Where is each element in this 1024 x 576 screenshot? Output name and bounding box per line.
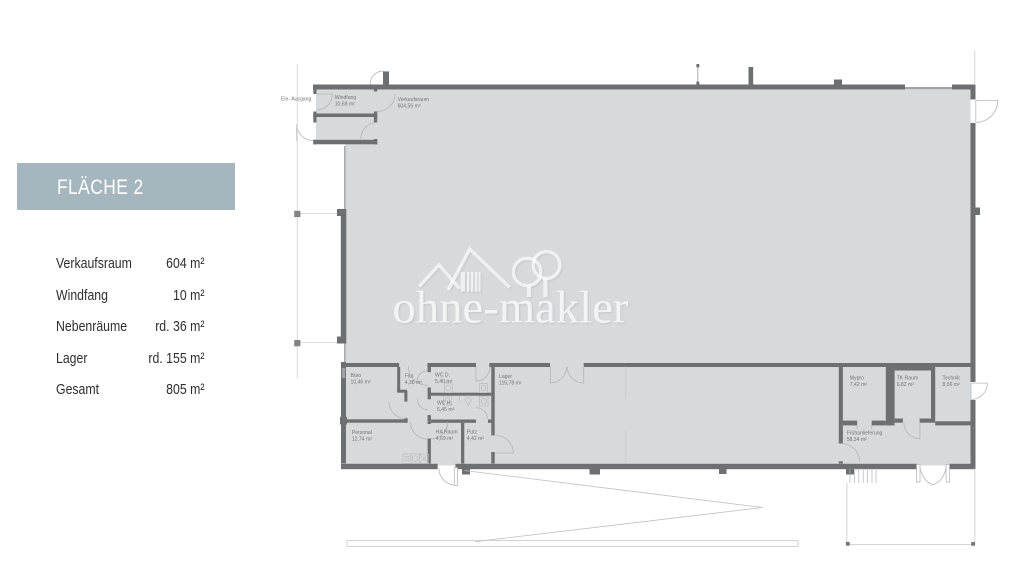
svg-text:Lager: Lager [499,374,512,380]
svg-text:6,82 m²: 6,82 m² [897,382,915,388]
svg-text:Mypro: Mypro [850,376,864,382]
svg-text:12,74 m²: 12,74 m² [352,437,372,443]
svg-text:Frühanlieferung: Frühanlieferung [847,431,883,437]
svg-text:WC H.: WC H. [437,401,452,407]
svg-text:Technik: Technik [943,376,961,382]
svg-text:Personal: Personal [352,430,372,436]
svg-text:Flur: Flur [405,374,414,380]
svg-text:115,78 m²: 115,78 m² [499,381,522,387]
svg-text:Büro: Büro [351,373,362,379]
svg-text:TK Raum: TK Raum [897,376,919,382]
svg-text:4,38 m²: 4,38 m² [405,380,423,386]
svg-text:HA Raum: HA Raum [436,430,458,436]
svg-text:Putz: Putz [467,430,478,436]
svg-text:58,34 m²: 58,34 m² [847,437,867,443]
svg-text:Ein- Ausgang: Ein- Ausgang [281,97,311,103]
svg-text:604,56 m²: 604,56 m² [398,104,421,110]
svg-text:7,42 m²: 7,42 m² [850,382,868,388]
svg-text:Verkaufsraum: Verkaufsraum [398,97,429,103]
svg-text:10,46 m²: 10,46 m² [351,380,371,386]
svg-text:WC D.: WC D. [435,373,450,379]
svg-text:8,56 m²: 8,56 m² [943,382,961,388]
svg-text:5,45 m²: 5,45 m² [437,407,455,413]
svg-text:10,68 m²: 10,68 m² [335,102,355,108]
svg-text:4,69 m²: 4,69 m² [436,436,454,442]
svg-text:5,40 m²: 5,40 m² [435,379,453,385]
svg-text:4,42 m²: 4,42 m² [467,436,485,442]
svg-text:ohne-makler: ohne-makler [393,283,629,333]
svg-text:Windfang: Windfang [335,95,357,101]
